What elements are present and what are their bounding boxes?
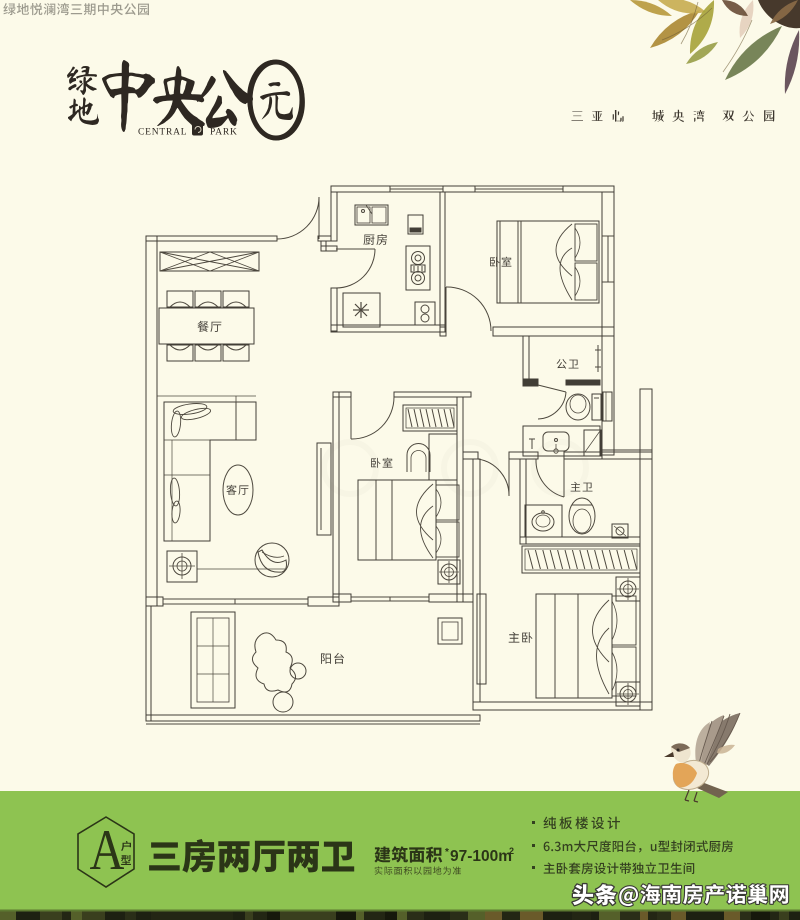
svg-text:*: * [445, 847, 449, 858]
svg-text:CENTRAL: CENTRAL [138, 128, 187, 138]
svg-text:PARK: PARK [210, 128, 238, 138]
svg-text:2: 2 [509, 846, 514, 856]
svg-text:97-100m: 97-100m [450, 848, 512, 865]
